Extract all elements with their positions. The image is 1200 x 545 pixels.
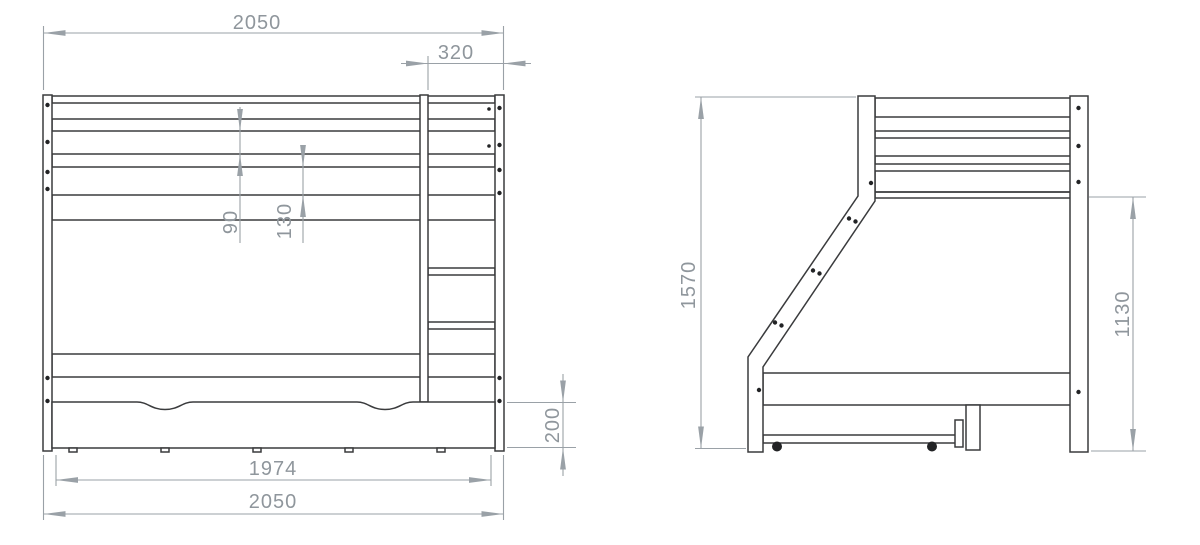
caster-wheel	[927, 442, 937, 452]
caster-wheel	[772, 442, 782, 452]
dim-label-2050-top: 2050	[233, 12, 282, 34]
side-screw-dots	[757, 106, 1081, 394]
side-lower-rail	[763, 373, 1072, 405]
bunk-bed-technical-drawing: 2050 320 90 130 200	[0, 0, 1200, 545]
dim-label-320: 320	[438, 42, 474, 64]
side-drawer	[763, 405, 980, 452]
dim-label-130: 130	[274, 203, 296, 239]
dim-label-2050-bottom: 2050	[249, 491, 298, 513]
side-slanted-post	[748, 96, 875, 452]
side-rear-post	[1070, 96, 1088, 452]
dim-drawer-height: 200	[507, 374, 576, 476]
drawing-canvas: 2050 320 90 130 200	[0, 0, 1200, 545]
underbed-drawer	[52, 402, 495, 448]
dim-drawer-width: 1974	[56, 455, 491, 486]
dim-guard-rail-gap: 90	[220, 107, 242, 243]
dim-label-1570: 1570	[678, 261, 700, 310]
front-view: 2050 320 90 130 200	[43, 12, 576, 520]
dim-ladder-width: 320	[401, 42, 531, 90]
ladder-rungs	[428, 268, 495, 329]
front-left-post	[43, 95, 52, 451]
dim-overall-width-top: 2050	[44, 12, 504, 90]
front-screw-dots	[45, 103, 501, 403]
ladder-stile	[420, 95, 428, 402]
side-guard-rails	[875, 98, 1072, 198]
front-right-post	[495, 95, 504, 451]
side-view: 1570 1130	[678, 96, 1146, 452]
dim-label-1974: 1974	[249, 458, 298, 480]
dim-upper-bed-height: 1130	[1089, 197, 1146, 451]
dim-overall-height: 1570	[678, 97, 856, 449]
dim-label-1130: 1130	[1112, 290, 1134, 337]
dim-label-200: 200	[542, 407, 564, 443]
dim-label-90: 90	[220, 210, 242, 234]
